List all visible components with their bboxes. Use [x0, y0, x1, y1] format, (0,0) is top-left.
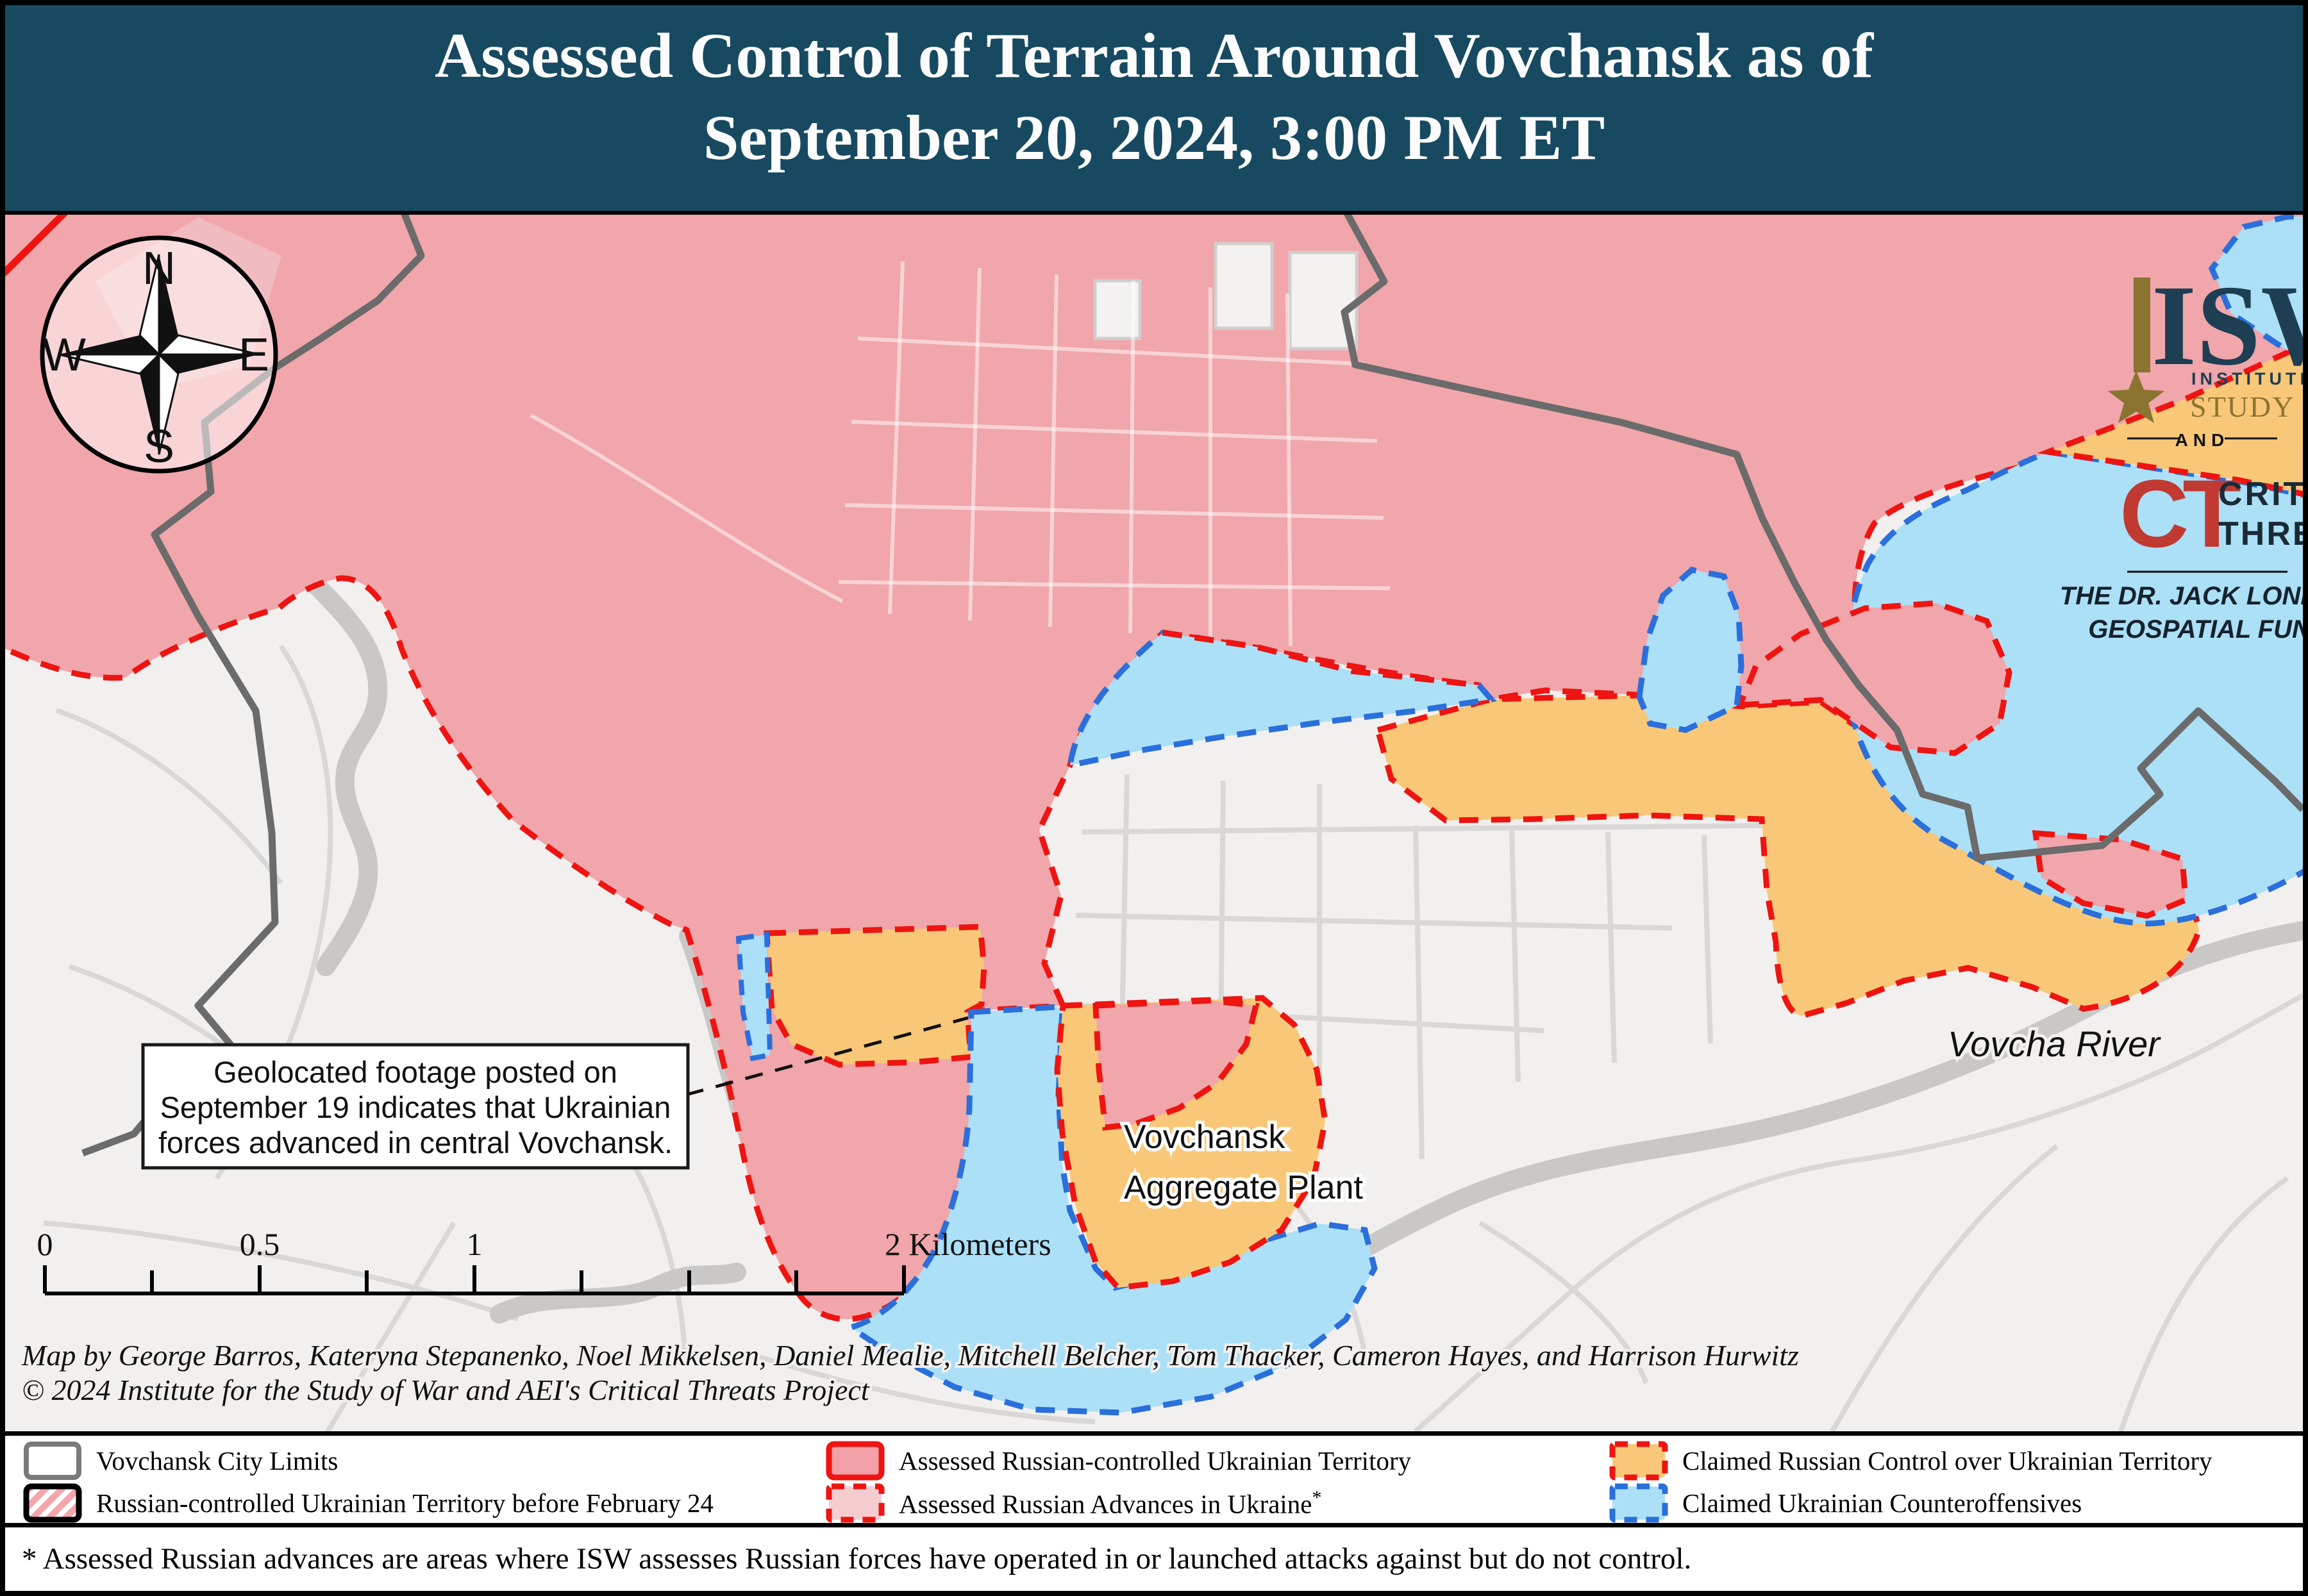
isw-line1: INSTITUTE FOR THE [2191, 369, 2303, 388]
scale-05: 0.5 [240, 1226, 280, 1262]
label-plant-line1: Vovchansk [1124, 1118, 1285, 1156]
compass-n: N [142, 243, 176, 294]
legend-swatch-claimed-ukrainian [1609, 1483, 1668, 1523]
legend: Vovchansk City Limits Russian-controlled… [5, 1431, 2303, 1527]
legend-item-claimed-russian: Claimed Russian Control over Ukrainian T… [1609, 1441, 2212, 1481]
title-banner: Assessed Control of Terrain Around Vovch… [5, 5, 2303, 215]
legend-label: Claimed Russian Control over Ukrainian T… [1682, 1445, 2212, 1476]
map-title-line1: Assessed Control of Terrain Around Vovch… [5, 14, 2303, 97]
attribution-line1: Map by George Barros, Kateryna Stepanenk… [21, 1339, 1799, 1372]
and-label: AND [2175, 430, 2230, 450]
legend-label: Russian-controlled Ukrainian Territory b… [96, 1488, 714, 1518]
isw-map-page: N S W E Vovchansk Aggregate Plant Vovcha… [0, 0, 2308, 1596]
legend-item-russian-controlled: Assessed Russian-controlled Ukrainian Te… [826, 1441, 1411, 1481]
attribution-line2: © 2024 Institute for the Study of War an… [22, 1374, 870, 1406]
legend-label: Vovchansk City Limits [96, 1445, 338, 1476]
compass-rose: N S W E [42, 238, 276, 472]
legend-swatch-claimed-russian [1609, 1441, 1668, 1481]
compass-w: W [42, 329, 86, 381]
callout-line2: September 19 indicates that Ukrainian [160, 1090, 671, 1124]
footnote-text: * Assessed Russian advances are areas wh… [22, 1542, 2303, 1576]
scale-1: 1 [467, 1226, 483, 1262]
footnote-asterisk: * [1312, 1487, 1322, 1508]
legend-item-city-limits: Vovchansk City Limits [23, 1441, 338, 1481]
scale-2km: 2 Kilometers [885, 1226, 1051, 1262]
scale-0: 0 [37, 1226, 53, 1262]
legend-label: Assessed Russian Advances in Ukraine* [899, 1487, 1322, 1520]
legend-item-claimed-ukrainian: Claimed Ukrainian Counteroffensives [1609, 1483, 2082, 1523]
ct-line2: THREATS [2218, 515, 2303, 553]
legend-item-pre-feb24: Russian-controlled Ukrainian Territory b… [23, 1483, 714, 1523]
legend-label: Assessed Russian-controlled Ukrainian Te… [899, 1445, 1411, 1476]
footnote-bar: * Assessed Russian advances are areas wh… [5, 1527, 2303, 1591]
legend-swatch-city-limits [23, 1441, 82, 1481]
label-river: Vovcha River [1948, 1024, 2161, 1064]
fund-line2: GEOSPATIAL FUND [2088, 615, 2303, 644]
label-plant-line2: Aggregate Plant [1124, 1169, 1363, 1206]
fund-line1: THE DR. JACK LONDON [2060, 582, 2303, 610]
legend-swatch-pre-feb24 [23, 1483, 82, 1523]
map-title-line2: September 20, 2024, 3:00 PM ET [5, 97, 2303, 178]
compass-e: E [238, 329, 269, 381]
map-canvas: N S W E Vovchansk Aggregate Plant Vovcha… [5, 5, 2303, 1591]
map-area: N S W E Vovchansk Aggregate Plant Vovcha… [5, 207, 2303, 1434]
ct-line1: CRITICAL [2218, 476, 2303, 513]
legend-swatch-russian-advances [826, 1483, 885, 1523]
legend-swatch-russian-controlled [826, 1441, 885, 1481]
callout-line1: Geolocated footage posted on [213, 1055, 617, 1089]
legend-label: Claimed Ukrainian Counteroffensives [1682, 1488, 2082, 1518]
legend-item-russian-advances: Assessed Russian Advances in Ukraine* [826, 1483, 1322, 1523]
isw-ribbon-icon [2134, 278, 2150, 372]
compass-s: S [144, 421, 174, 472]
callout-line3: forces advanced in central Vovchansk. [158, 1126, 673, 1160]
isw-line2: STUDY OF WAR [2190, 390, 2303, 423]
